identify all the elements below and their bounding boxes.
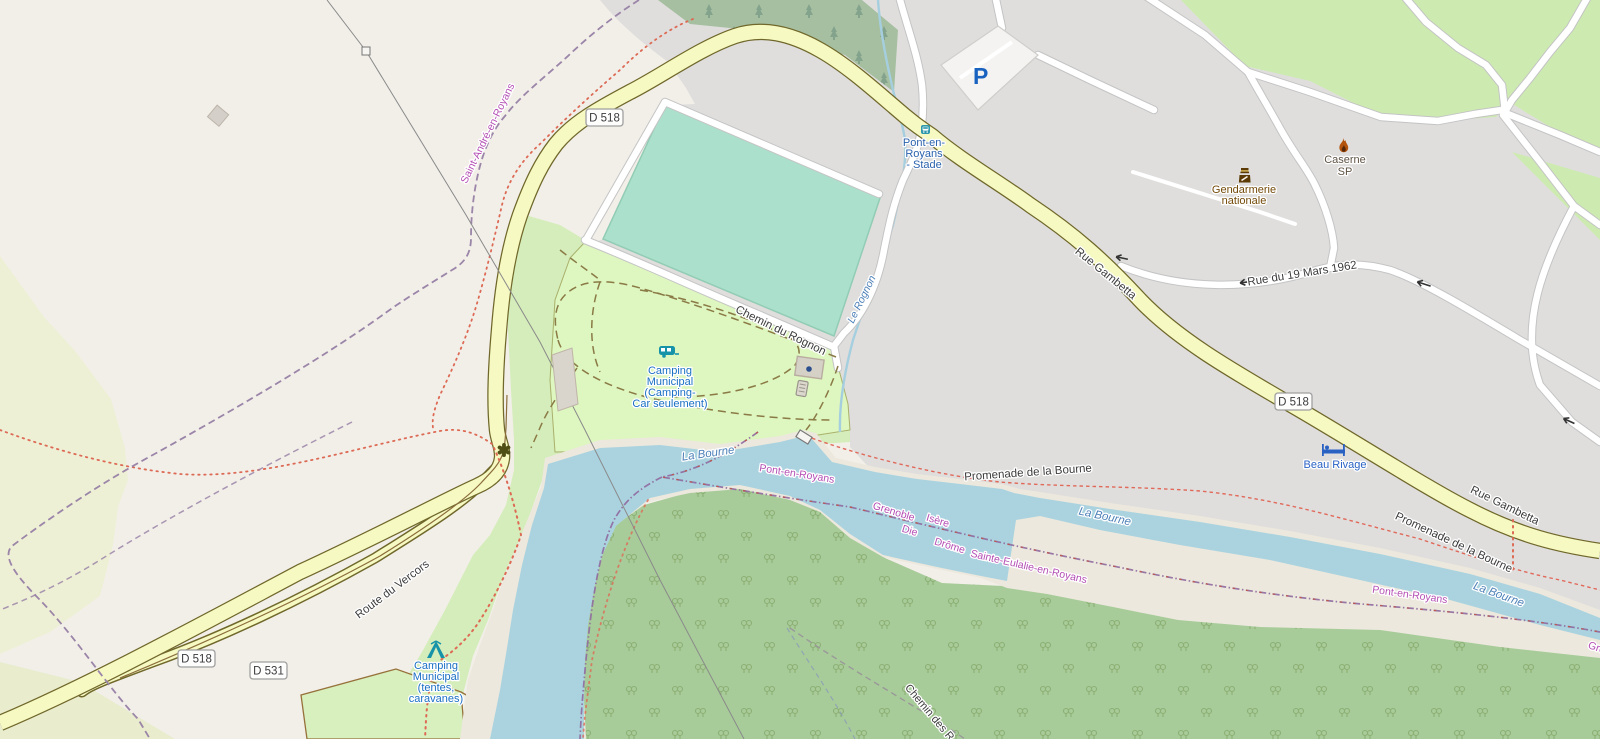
svg-text:Caserne: Caserne bbox=[1324, 154, 1366, 166]
svg-text:D 518: D 518 bbox=[1278, 397, 1309, 409]
svg-text:- Stade: - Stade bbox=[906, 159, 941, 171]
svg-text:caravanes): caravanes) bbox=[409, 693, 463, 705]
svg-text:Car seulement): Car seulement) bbox=[632, 398, 707, 410]
svg-text:Beau Rivage: Beau Rivage bbox=[1304, 459, 1367, 471]
svg-text:D 531: D 531 bbox=[253, 666, 284, 678]
svg-text:D 518: D 518 bbox=[181, 654, 212, 666]
svg-text:P: P bbox=[973, 63, 988, 89]
svg-text:nationale: nationale bbox=[1222, 195, 1267, 207]
svg-text:SP: SP bbox=[1338, 166, 1353, 178]
svg-text:D 518: D 518 bbox=[589, 113, 620, 125]
